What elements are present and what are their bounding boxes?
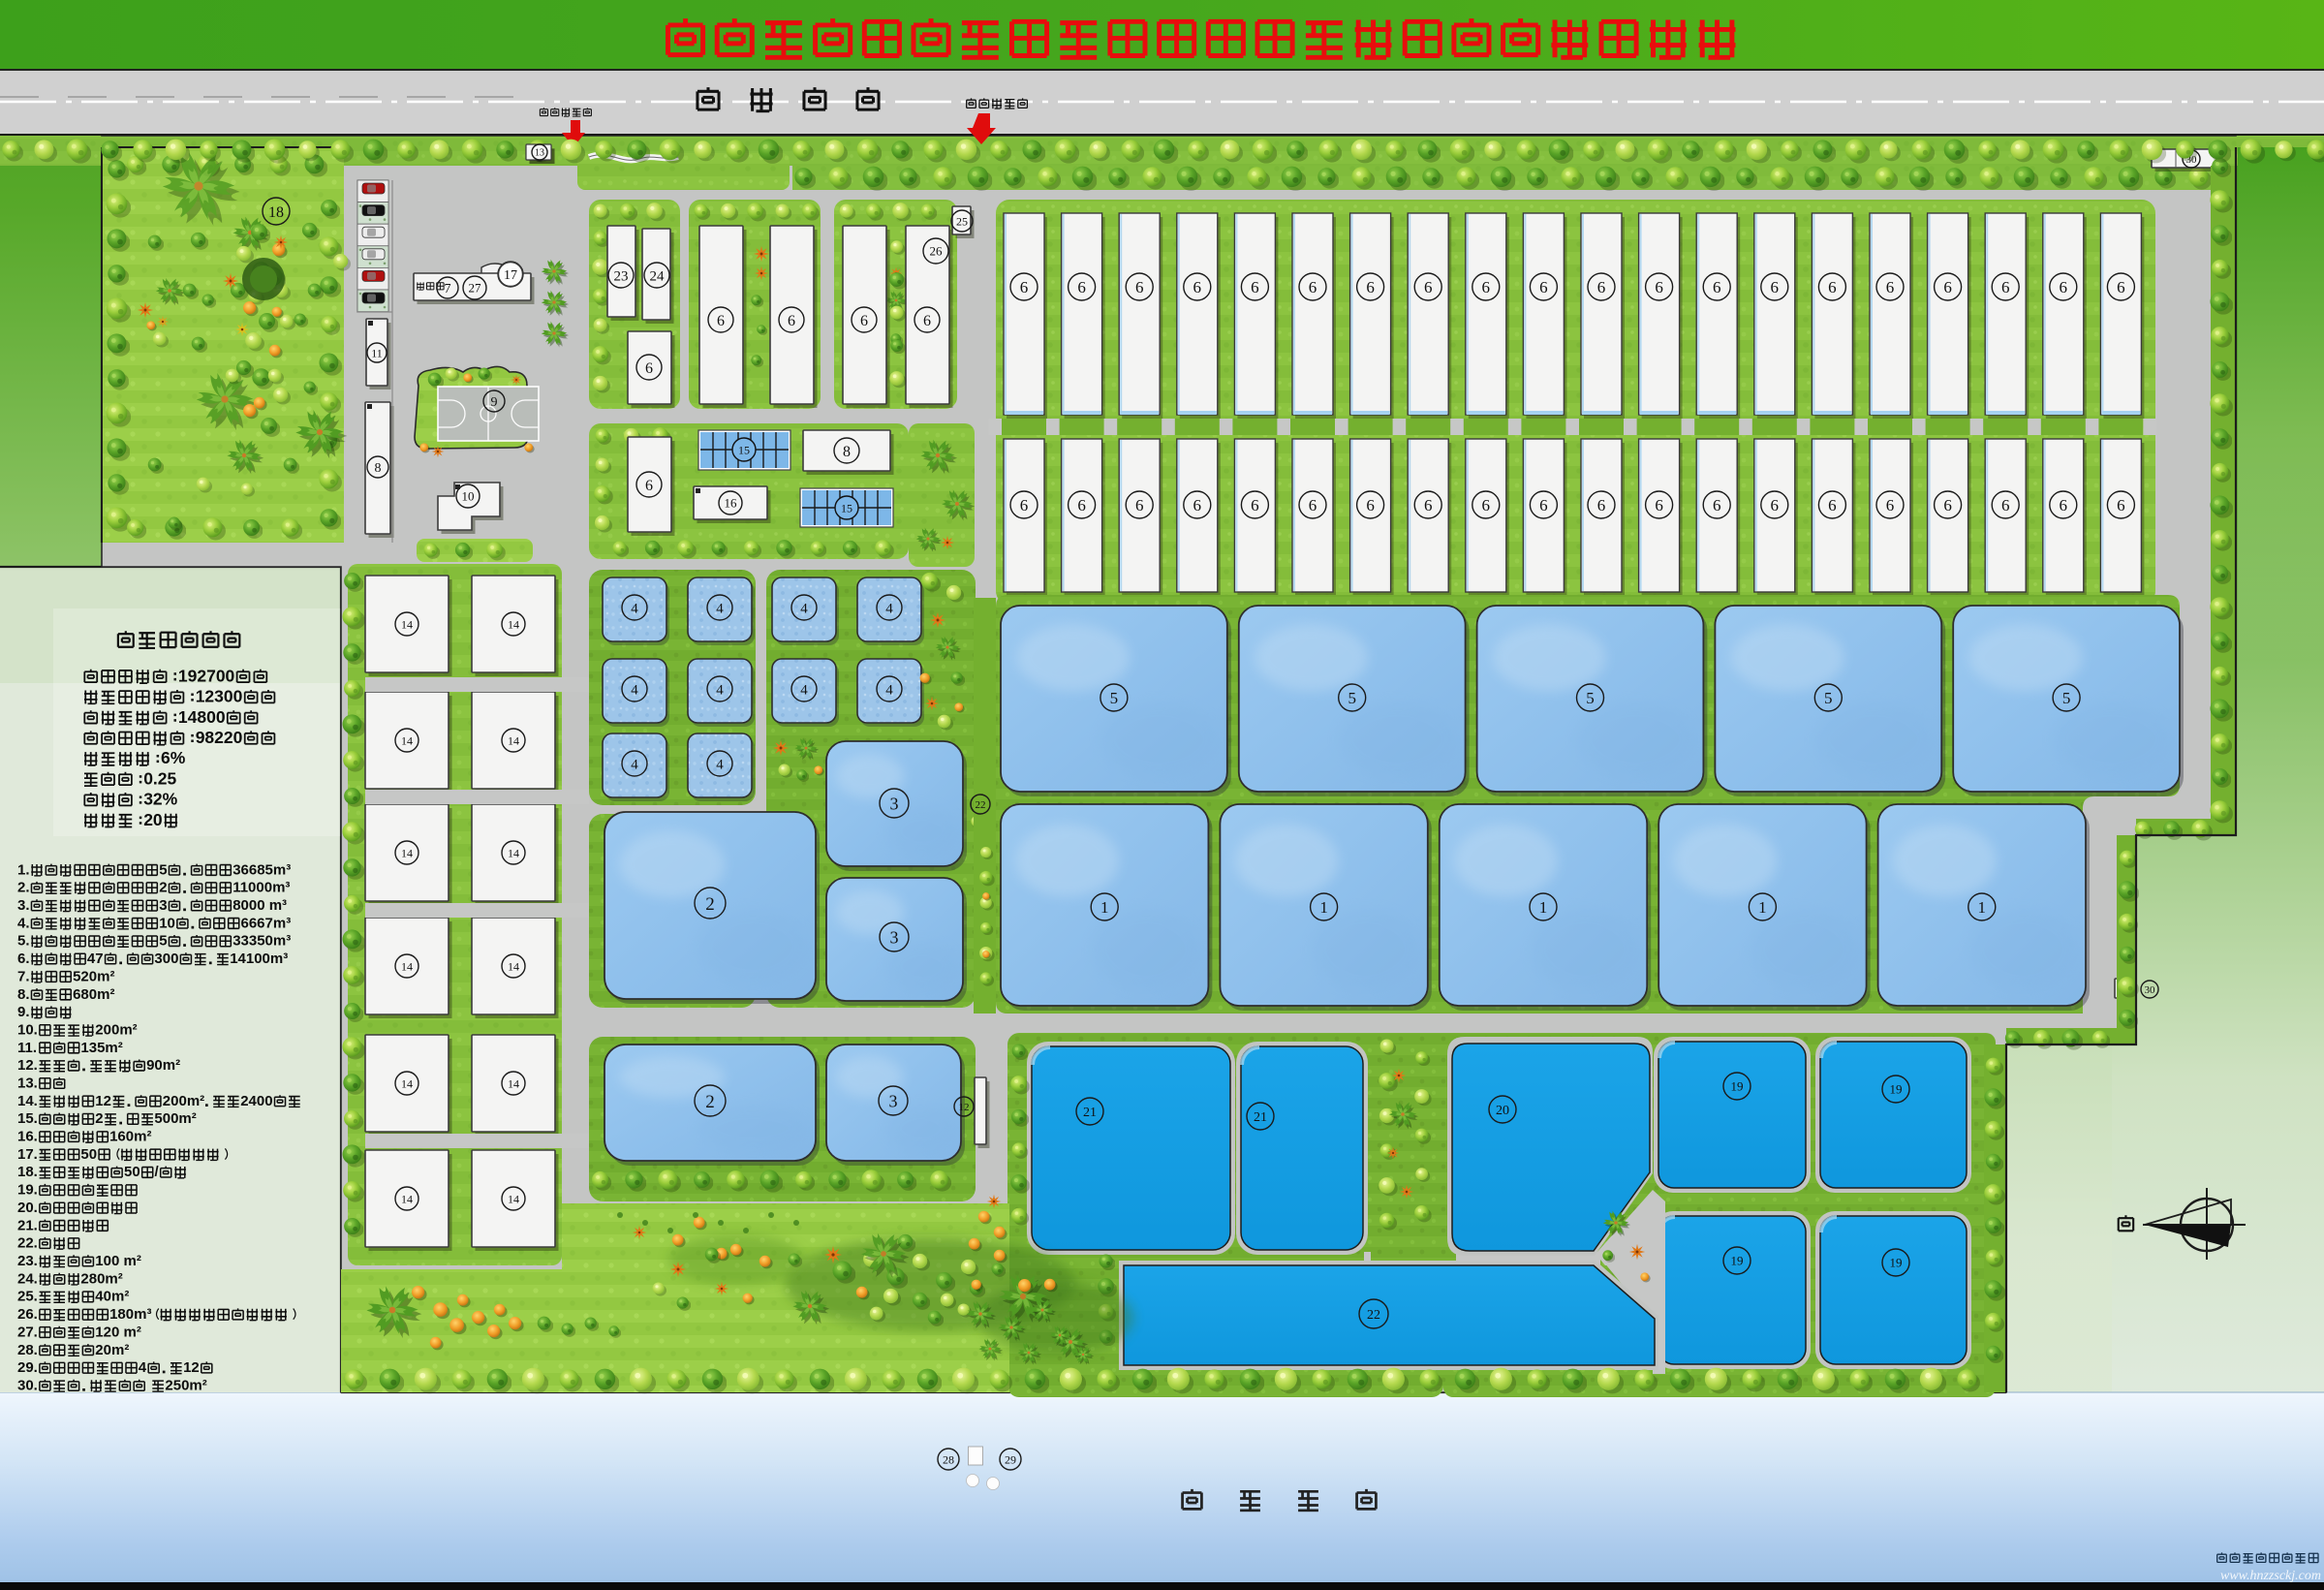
- svg-text:5: 5: [159, 861, 167, 878]
- svg-text:6: 6: [1424, 278, 1433, 296]
- svg-text:6: 6: [1366, 496, 1375, 514]
- svg-text:4: 4: [631, 601, 638, 616]
- svg-text:6: 6: [2060, 278, 2068, 296]
- svg-text:6: 6: [2117, 278, 2125, 296]
- svg-text:13.: 13.: [17, 1076, 38, 1092]
- svg-text:14: 14: [401, 846, 413, 859]
- svg-text:6: 6: [1713, 496, 1721, 514]
- svg-text:280m²: 280m²: [80, 1270, 122, 1287]
- svg-text:15: 15: [738, 443, 750, 456]
- svg-text:26.: 26.: [17, 1306, 38, 1323]
- svg-text:6: 6: [1886, 496, 1895, 514]
- svg-text:11: 11: [371, 346, 383, 359]
- svg-text:13: 13: [535, 148, 544, 159]
- svg-text:135m²: 135m²: [80, 1040, 122, 1056]
- svg-text:500m²: 500m²: [154, 1110, 196, 1127]
- svg-text:4.: 4.: [17, 915, 30, 931]
- svg-text:26: 26: [930, 244, 944, 259]
- svg-text:11000m³: 11000m³: [232, 880, 290, 896]
- svg-text:21: 21: [1083, 1106, 1097, 1120]
- svg-text:12300: 12300: [196, 687, 243, 706]
- svg-text:14: 14: [508, 1192, 519, 1205]
- svg-text:16.: 16.: [17, 1129, 38, 1145]
- svg-text:50: 50: [80, 1146, 97, 1163]
- svg-text:22: 22: [1367, 1308, 1380, 1323]
- svg-text:6667m³: 6667m³: [241, 915, 292, 931]
- svg-text:20m²: 20m²: [95, 1342, 129, 1358]
- svg-text:8000 m³: 8000 m³: [232, 897, 287, 914]
- svg-text:4: 4: [800, 601, 808, 616]
- svg-text:17.: 17.: [17, 1146, 38, 1163]
- svg-text:4: 4: [631, 682, 638, 698]
- svg-text:7.: 7.: [17, 968, 30, 984]
- svg-text:2: 2: [159, 880, 167, 896]
- svg-text:5.: 5.: [17, 933, 30, 950]
- svg-text:12.: 12.: [17, 1057, 38, 1074]
- svg-text:680m²: 680m²: [73, 986, 114, 1003]
- svg-text:6: 6: [923, 313, 931, 329]
- svg-text:6: 6: [1886, 278, 1895, 296]
- svg-text:15: 15: [841, 501, 852, 514]
- svg-text:www.hnzzsckj.com: www.hnzzsckj.com: [2220, 1569, 2321, 1583]
- svg-text:6: 6: [2001, 496, 2010, 514]
- svg-text:6: 6: [1077, 278, 1086, 296]
- svg-text:18: 18: [268, 204, 284, 221]
- svg-text:14: 14: [508, 733, 519, 747]
- svg-text:1: 1: [1758, 898, 1767, 917]
- svg-text:11.: 11.: [17, 1040, 37, 1056]
- svg-text:14800: 14800: [178, 707, 226, 727]
- svg-text:19.: 19.: [17, 1182, 38, 1199]
- svg-text:24.: 24.: [17, 1270, 38, 1287]
- svg-text:19: 19: [1890, 1082, 1903, 1097]
- svg-text:6: 6: [1020, 278, 1029, 296]
- svg-text:6: 6: [1193, 496, 1202, 514]
- svg-text:14: 14: [401, 959, 413, 973]
- svg-text:6: 6: [645, 478, 653, 494]
- svg-text:160m²: 160m²: [109, 1129, 151, 1145]
- svg-text:29.: 29.: [17, 1359, 38, 1376]
- svg-text:6: 6: [1366, 278, 1375, 296]
- svg-text:10.: 10.: [17, 1022, 38, 1039]
- svg-text:4: 4: [885, 601, 893, 616]
- svg-text:90m²: 90m²: [146, 1057, 180, 1074]
- svg-text:6: 6: [1251, 278, 1259, 296]
- svg-text:3: 3: [159, 897, 167, 914]
- svg-text:16: 16: [725, 496, 738, 511]
- svg-text:6: 6: [1771, 496, 1780, 514]
- svg-text:4: 4: [800, 682, 808, 698]
- svg-text:4: 4: [716, 757, 724, 772]
- svg-text:27: 27: [469, 281, 482, 296]
- svg-text:29: 29: [1005, 1452, 1016, 1466]
- svg-text:8: 8: [375, 461, 382, 476]
- svg-text:2: 2: [705, 894, 715, 915]
- svg-text:15.: 15.: [17, 1110, 38, 1127]
- svg-text:12: 12: [95, 1093, 111, 1109]
- svg-text:4: 4: [716, 682, 724, 698]
- svg-text:22.: 22.: [17, 1235, 38, 1252]
- svg-text:6: 6: [1597, 278, 1606, 296]
- svg-text:1: 1: [1978, 898, 1987, 917]
- svg-text:6: 6: [1424, 496, 1433, 514]
- svg-text:6: 6: [717, 313, 725, 329]
- svg-text:23: 23: [614, 268, 629, 284]
- svg-text:28.: 28.: [17, 1342, 38, 1358]
- svg-text:14.: 14.: [17, 1093, 38, 1109]
- svg-text:6: 6: [1020, 496, 1029, 514]
- svg-text:22: 22: [976, 799, 986, 811]
- svg-text:14: 14: [401, 1192, 413, 1205]
- svg-text:6: 6: [2060, 496, 2068, 514]
- svg-text:6: 6: [645, 360, 653, 377]
- svg-text:200m²: 200m²: [95, 1022, 137, 1039]
- svg-text:5: 5: [1110, 689, 1119, 707]
- svg-text:120 m²: 120 m²: [95, 1324, 141, 1340]
- svg-text:8: 8: [843, 444, 851, 460]
- svg-text:20.: 20.: [17, 1200, 38, 1216]
- svg-text:1: 1: [1539, 898, 1548, 917]
- svg-text:2400: 2400: [240, 1093, 272, 1109]
- svg-text:33350m³: 33350m³: [232, 933, 291, 950]
- svg-text:6: 6: [1943, 496, 1952, 514]
- svg-text:28: 28: [943, 1452, 954, 1466]
- svg-text:5: 5: [1348, 689, 1356, 707]
- svg-text:19: 19: [1731, 1254, 1744, 1268]
- svg-text:14: 14: [508, 617, 519, 631]
- svg-text:19: 19: [1731, 1079, 1744, 1094]
- svg-text:5: 5: [159, 933, 167, 950]
- svg-text:0.25: 0.25: [143, 768, 176, 788]
- svg-text:36685m³: 36685m³: [232, 861, 291, 878]
- svg-text:20: 20: [143, 810, 163, 829]
- svg-text:6: 6: [1135, 496, 1144, 514]
- svg-text:10: 10: [462, 489, 475, 504]
- svg-text:6: 6: [1193, 278, 1202, 296]
- svg-text:1: 1: [1319, 898, 1328, 917]
- svg-text:6%: 6%: [161, 748, 186, 767]
- svg-text:14100m³: 14100m³: [230, 951, 288, 967]
- svg-text:3: 3: [890, 928, 899, 948]
- svg-text:4: 4: [139, 1359, 147, 1376]
- svg-text:6: 6: [1943, 278, 1952, 296]
- svg-text:100 m²: 100 m²: [95, 1253, 141, 1269]
- svg-text:17: 17: [504, 268, 517, 283]
- svg-text:14: 14: [401, 617, 413, 631]
- svg-text:27.: 27.: [17, 1324, 38, 1340]
- svg-text:520m²: 520m²: [73, 968, 114, 984]
- svg-text:4: 4: [885, 682, 893, 698]
- svg-text:6: 6: [1482, 496, 1491, 514]
- svg-text:300: 300: [154, 951, 178, 967]
- svg-text:4: 4: [631, 757, 638, 772]
- svg-text:32%: 32%: [143, 790, 177, 809]
- svg-text:6: 6: [788, 313, 795, 329]
- svg-text:24: 24: [650, 268, 666, 284]
- svg-text:25: 25: [956, 214, 968, 228]
- svg-text:21: 21: [1254, 1110, 1267, 1125]
- svg-text:14: 14: [401, 1076, 413, 1090]
- svg-text:50: 50: [124, 1164, 140, 1180]
- svg-text:192700: 192700: [178, 666, 235, 685]
- svg-text:14: 14: [508, 1076, 519, 1090]
- svg-text:9: 9: [491, 395, 498, 410]
- svg-text:7: 7: [445, 282, 451, 296]
- svg-text:6: 6: [1771, 278, 1780, 296]
- svg-text:30: 30: [2145, 984, 2156, 996]
- svg-text:6: 6: [1655, 278, 1663, 296]
- svg-text:6: 6: [1309, 496, 1317, 514]
- svg-text:14: 14: [508, 959, 519, 973]
- svg-text:18.: 18.: [17, 1164, 38, 1180]
- svg-text:12: 12: [959, 1102, 970, 1113]
- svg-text:180m³: 180m³: [109, 1306, 151, 1323]
- svg-text:10: 10: [159, 915, 175, 931]
- svg-text:5: 5: [1586, 689, 1595, 707]
- svg-text:2: 2: [705, 1092, 715, 1112]
- svg-text:21.: 21.: [17, 1217, 38, 1233]
- svg-text:200m²: 200m²: [163, 1093, 204, 1109]
- svg-text:6: 6: [1539, 496, 1548, 514]
- svg-text:23.: 23.: [17, 1253, 38, 1269]
- svg-text:6: 6: [1828, 496, 1837, 514]
- svg-text:8.: 8.: [17, 986, 30, 1003]
- svg-text:12: 12: [183, 1359, 200, 1376]
- svg-text:6: 6: [1309, 278, 1317, 296]
- svg-text:250m²: 250m²: [165, 1378, 206, 1394]
- svg-text:25.: 25.: [17, 1289, 38, 1305]
- svg-text:6: 6: [1482, 278, 1491, 296]
- svg-text:98220: 98220: [196, 728, 243, 747]
- svg-text:3: 3: [890, 795, 899, 814]
- svg-text:47: 47: [87, 951, 104, 967]
- svg-text:6: 6: [2001, 278, 2010, 296]
- svg-text:5: 5: [1824, 689, 1833, 707]
- svg-text:6: 6: [860, 313, 868, 329]
- svg-text:9.: 9.: [17, 1004, 30, 1020]
- svg-text:5: 5: [2062, 689, 2071, 707]
- svg-text:3.: 3.: [17, 897, 30, 914]
- svg-text:1.: 1.: [17, 861, 30, 878]
- svg-text:6: 6: [1597, 496, 1606, 514]
- svg-text:40m²: 40m²: [95, 1289, 129, 1305]
- svg-text:3: 3: [889, 1092, 898, 1111]
- svg-text:30.: 30.: [17, 1378, 38, 1394]
- svg-text:6: 6: [1655, 496, 1663, 514]
- svg-text:2.: 2.: [17, 880, 30, 896]
- svg-text:6: 6: [1828, 278, 1837, 296]
- svg-text:19: 19: [1890, 1256, 1903, 1270]
- svg-text:6: 6: [2117, 496, 2125, 514]
- svg-text:14: 14: [401, 733, 413, 747]
- svg-text:6: 6: [1251, 496, 1259, 514]
- svg-text:14: 14: [508, 846, 519, 859]
- svg-text:4: 4: [716, 601, 724, 616]
- svg-text:6: 6: [1539, 278, 1548, 296]
- svg-text:6: 6: [1713, 278, 1721, 296]
- svg-text:20: 20: [1496, 1104, 1509, 1118]
- svg-text:6.: 6.: [17, 951, 30, 967]
- svg-text:1: 1: [1100, 898, 1109, 917]
- svg-text:6: 6: [1135, 278, 1144, 296]
- svg-text:6: 6: [1077, 496, 1086, 514]
- svg-text:2: 2: [95, 1110, 103, 1127]
